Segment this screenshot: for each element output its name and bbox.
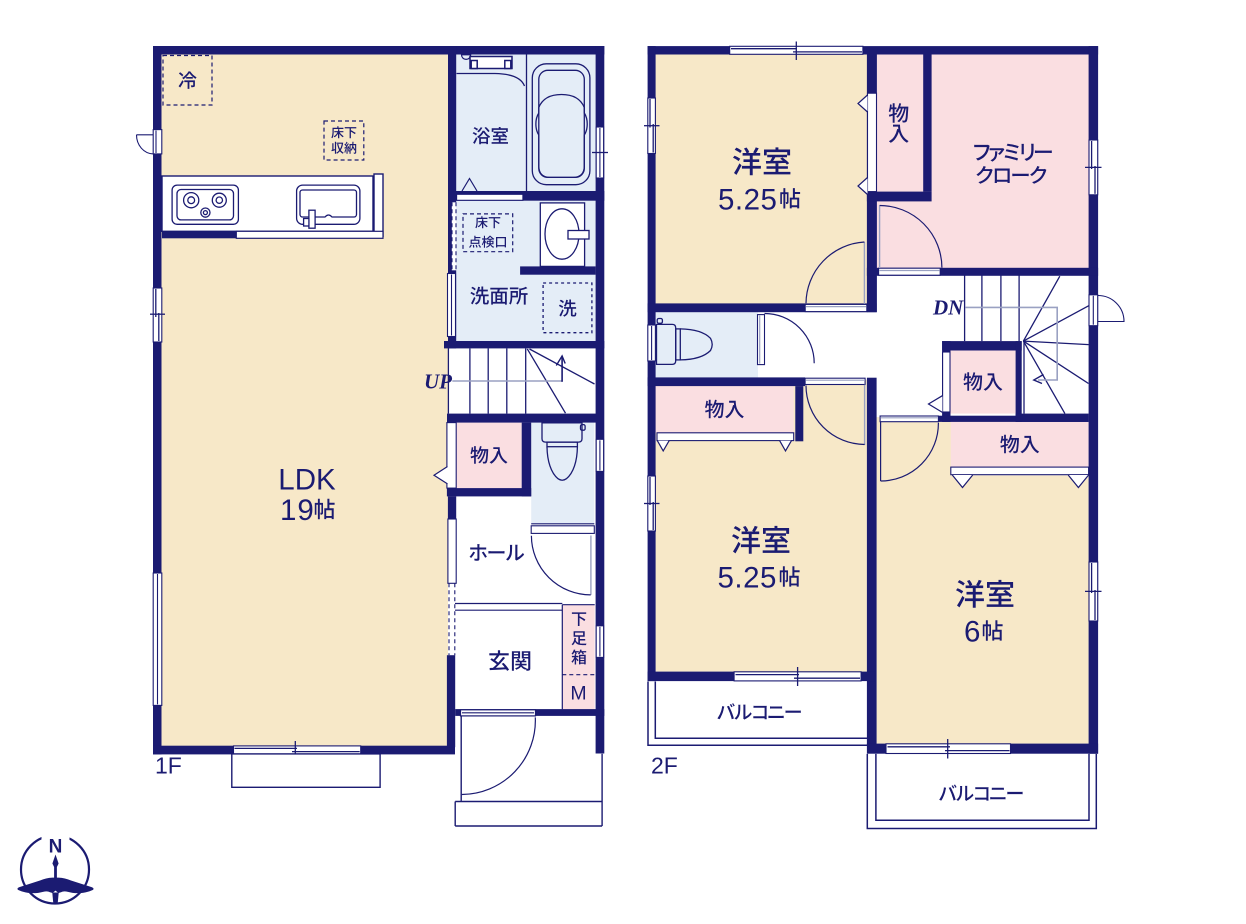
svg-text:5.25: 5.25 xyxy=(718,562,777,595)
svg-text:19: 19 xyxy=(280,494,315,527)
svg-text:5.25: 5.25 xyxy=(718,183,777,216)
svg-text:M: M xyxy=(570,683,586,705)
svg-text:DN: DN xyxy=(932,296,964,320)
svg-text:N: N xyxy=(49,837,63,858)
svg-text:UP: UP xyxy=(424,370,452,394)
svg-text:1F: 1F xyxy=(155,753,182,779)
svg-text:6: 6 xyxy=(964,616,980,649)
svg-text:LDK: LDK xyxy=(278,464,336,497)
svg-text:2F: 2F xyxy=(651,753,678,779)
